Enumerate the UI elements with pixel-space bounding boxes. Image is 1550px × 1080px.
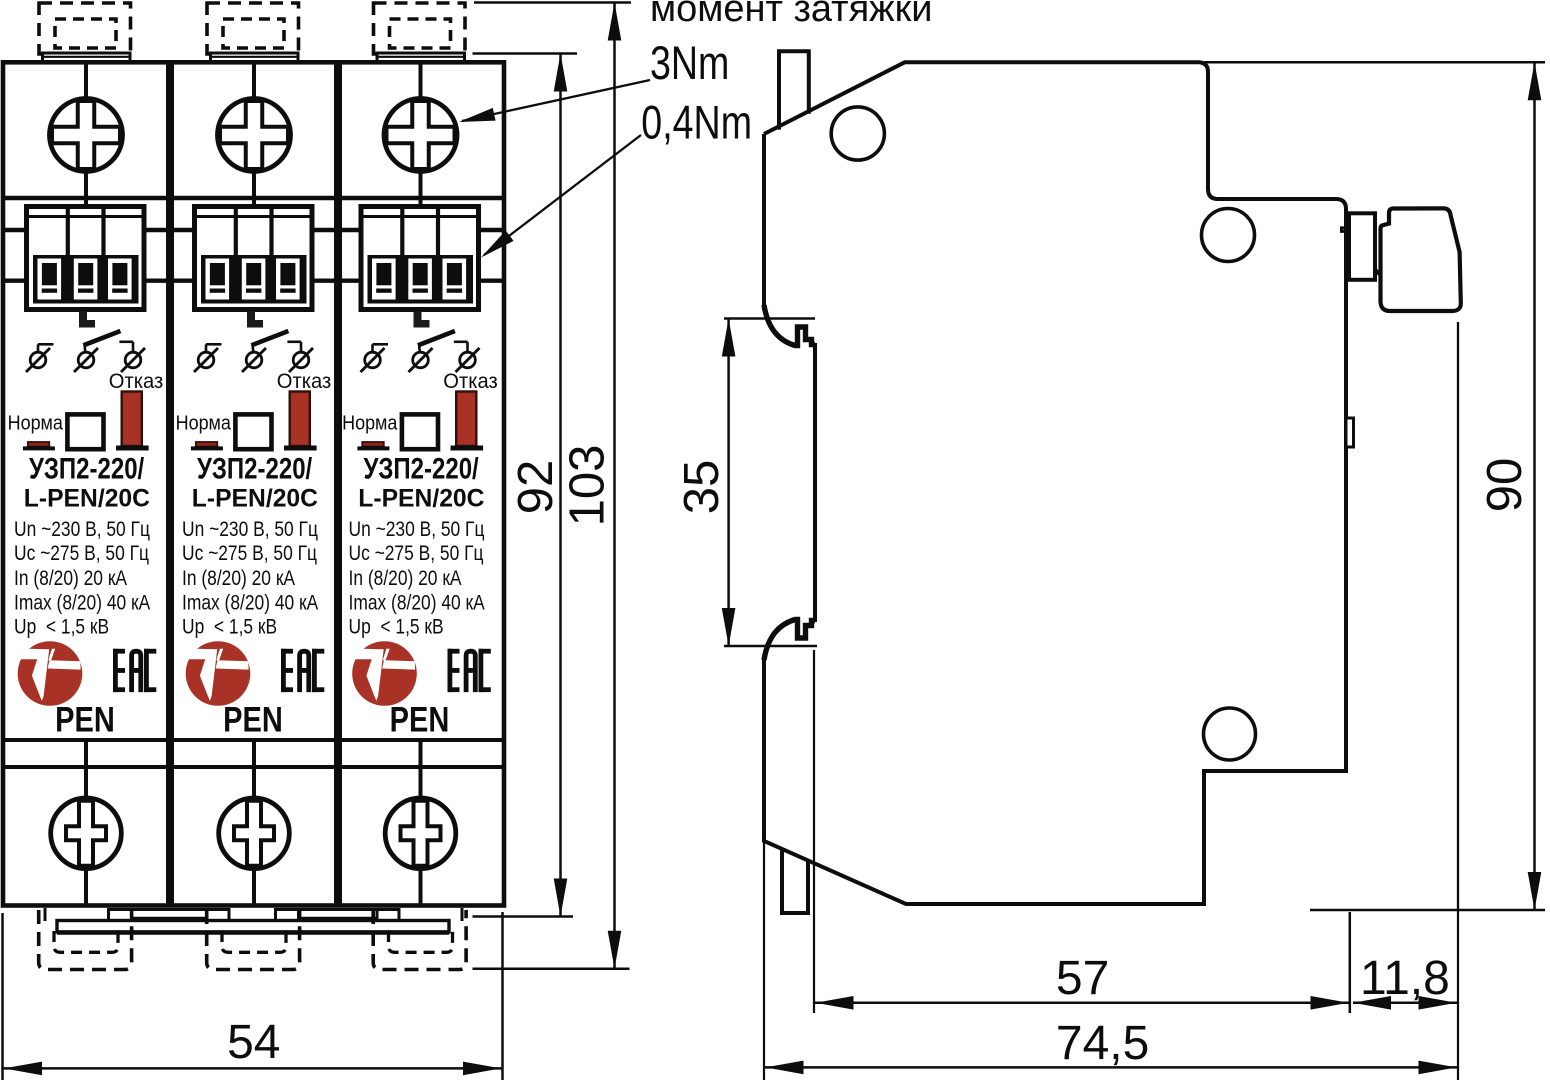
svg-text:In (8/20) 20 кА: In (8/20) 20 кА bbox=[182, 566, 295, 590]
svg-text:Un ~230 В, 50 Гц: Un ~230 В, 50 Гц bbox=[349, 517, 485, 541]
svg-text:In (8/20) 20 кА: In (8/20) 20 кА bbox=[14, 566, 127, 590]
svg-text:Imax (8/20) 40 кА: Imax (8/20) 40 кА bbox=[182, 591, 318, 615]
svg-text:Норма: Норма bbox=[8, 413, 64, 435]
svg-text:103: 103 bbox=[560, 445, 614, 527]
svg-text:УЗП2-220/: УЗП2-220/ bbox=[197, 451, 313, 485]
svg-text:Imax (8/20) 40 кА: Imax (8/20) 40 кА bbox=[349, 591, 485, 615]
svg-text:УЗП2-220/: УЗП2-220/ bbox=[29, 451, 145, 485]
svg-text:Uc ~275 В, 50 Гц: Uc ~275 В, 50 Гц bbox=[14, 542, 149, 566]
svg-text:0,4Nm: 0,4Nm bbox=[641, 97, 752, 150]
svg-text:74,5: 74,5 bbox=[1056, 1017, 1149, 1070]
svg-text:УЗП2-220/: УЗП2-220/ bbox=[363, 451, 479, 485]
svg-text:L-PEN/20C: L-PEN/20C bbox=[24, 484, 150, 512]
svg-text:Up < 1,5 кВ: Up < 1,5 кВ bbox=[182, 615, 277, 639]
svg-text:Отказ: Отказ bbox=[109, 370, 163, 393]
svg-text:35: 35 bbox=[675, 460, 729, 515]
svg-text:PEN: PEN bbox=[390, 700, 450, 739]
svg-text:Норма: Норма bbox=[342, 413, 398, 435]
svg-text:Uc ~275 В, 50 Гц: Uc ~275 В, 50 Гц bbox=[182, 542, 317, 566]
svg-text:Up < 1,5 кВ: Up < 1,5 кВ bbox=[14, 615, 109, 639]
svg-text:Imax (8/20) 40 кА: Imax (8/20) 40 кА bbox=[14, 591, 150, 615]
svg-text:90: 90 bbox=[1478, 458, 1532, 513]
svg-text:Uc ~275 В, 50 Гц: Uc ~275 В, 50 Гц bbox=[349, 542, 484, 566]
svg-text:Отказ: Отказ bbox=[443, 370, 497, 393]
svg-text:Отказ: Отказ bbox=[277, 370, 331, 393]
svg-text:PEN: PEN bbox=[223, 700, 283, 739]
svg-text:PEN: PEN bbox=[55, 700, 115, 739]
svg-text:11,8: 11,8 bbox=[1360, 952, 1450, 1005]
svg-text:92: 92 bbox=[509, 460, 563, 515]
svg-text:Up < 1,5 кВ: Up < 1,5 кВ bbox=[349, 615, 444, 639]
svg-text:54: 54 bbox=[227, 1016, 280, 1069]
svg-text:L-PEN/20C: L-PEN/20C bbox=[358, 484, 484, 512]
svg-text:L-PEN/20C: L-PEN/20C bbox=[192, 484, 318, 512]
svg-text:3Nm: 3Nm bbox=[650, 37, 729, 90]
svg-text:57: 57 bbox=[1056, 952, 1109, 1005]
svg-text:Un ~230 В, 50 Гц: Un ~230 В, 50 Гц bbox=[182, 517, 318, 541]
svg-text:момент затяжки: момент затяжки bbox=[650, 0, 932, 30]
svg-text:Норма: Норма bbox=[176, 413, 232, 435]
svg-text:In (8/20) 20 кА: In (8/20) 20 кА bbox=[349, 566, 462, 590]
svg-text:Un ~230 В, 50 Гц: Un ~230 В, 50 Гц bbox=[14, 517, 150, 541]
